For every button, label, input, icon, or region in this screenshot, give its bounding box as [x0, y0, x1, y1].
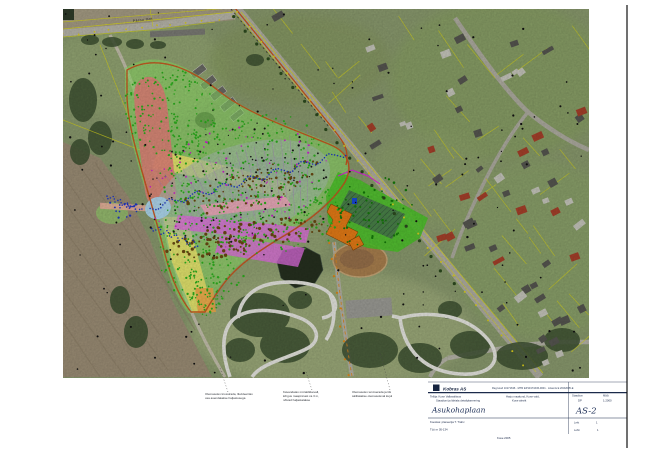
stage-label: Staadium [572, 394, 583, 398]
sheets-value: 1 [597, 428, 599, 432]
footer-center-text: Kose 2005 [497, 436, 511, 440]
drawing-title: Asukohaplaan [431, 406, 486, 415]
site-plan-drawing: Pärnu mnt Olemasolev krossirada, likvide… [0, 0, 650, 459]
drawing-number: AS-2 [575, 407, 597, 417]
registry-refs: Reg kood 10171636 · MTR EP10171636-0001 … [492, 386, 574, 390]
sheets-label: Lehti [574, 428, 580, 432]
work-number-field: Töö nr 05-134 [430, 428, 448, 432]
title-block: Kobras AS Reg kood 10171636 · MTR EP1017… [428, 382, 627, 440]
svg-text:osa asendatakse haljastusega: osa asendatakse haljastusega [205, 396, 246, 400]
sheet-label: Leht [574, 421, 579, 425]
note-1: Olemasolev krossirada, likvideeritav osa… [205, 392, 253, 400]
note-3: Olemasolev terviserada ja tiik säilitata… [352, 390, 393, 398]
note-2: Kavandatav müratõkkevall, kõrgus maapinn… [283, 390, 319, 402]
svg-text:nõlvad haljastatakse: nõlvad haljastatakse [283, 398, 311, 402]
company-logo-text: Kobras AS [443, 387, 467, 392]
aerial-photo [50, 0, 630, 390]
company-logo-mark [433, 385, 440, 392]
sheet-value: 1 [596, 421, 598, 425]
location-line-2: Kose alevik [512, 399, 527, 403]
author-field: Koostas: planeerija T. Trahv [430, 420, 465, 424]
photo-grain [63, 9, 589, 378]
plan-sheet: Pärnu mnt Olemasolev krossirada, likvide… [0, 0, 650, 459]
scale-value: 1:2000 [603, 399, 612, 403]
project-field: Staadioni ja lähiala detailplaneering [436, 399, 480, 403]
stage-value: DP [578, 399, 582, 403]
svg-text:säilitatakse olemasoleval kuju: säilitatakse olemasoleval kujul [352, 394, 393, 398]
scale-label: Mõõt [603, 394, 609, 398]
